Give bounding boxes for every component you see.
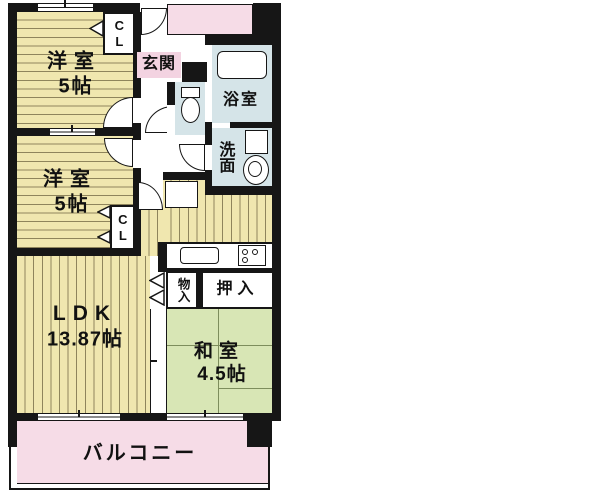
ldk-label: LDK bbox=[53, 303, 117, 325]
burner bbox=[242, 249, 248, 255]
window-tick bbox=[64, 0, 66, 7]
balcony-rail bbox=[268, 447, 270, 489]
partition-tick bbox=[150, 360, 157, 362]
wall-segment bbox=[93, 3, 140, 12]
partition-window bbox=[50, 128, 95, 136]
monoiri-label: 物入 bbox=[175, 278, 188, 303]
fridge-space bbox=[165, 181, 198, 208]
folding-door-icon bbox=[97, 205, 111, 219]
oshiire-label: 押入 bbox=[216, 282, 258, 299]
ldk-size: 13.87帖 bbox=[47, 330, 123, 351]
burner bbox=[252, 249, 258, 255]
folding-door-icon bbox=[149, 289, 165, 306]
door-gap bbox=[167, 105, 175, 133]
door-gap bbox=[133, 140, 141, 168]
washitsu-label: 和室 bbox=[194, 342, 244, 362]
wall-segment bbox=[167, 82, 175, 105]
folding-door-icon bbox=[97, 230, 111, 244]
wall-segment bbox=[230, 122, 272, 128]
wall-segment bbox=[272, 3, 281, 421]
closet-2-label: CL bbox=[116, 212, 130, 244]
window-tick bbox=[78, 410, 80, 417]
folding-door-icon bbox=[89, 20, 104, 37]
bath-label: 浴室 bbox=[223, 93, 259, 110]
window bbox=[38, 3, 93, 12]
wall-segment bbox=[205, 35, 272, 45]
hall-ldk-door-arc bbox=[138, 182, 163, 210]
storage-monoiri: 物入 bbox=[166, 271, 198, 309]
western2-label: 洋室 bbox=[43, 170, 97, 191]
balcony-rail bbox=[9, 488, 270, 490]
western1-size: 5帖 bbox=[58, 77, 93, 98]
door-gap bbox=[133, 98, 141, 123]
toilet-icon bbox=[181, 97, 200, 123]
closet-oshiire: 押入 bbox=[201, 271, 274, 309]
wall-segment bbox=[205, 186, 272, 195]
western1-label: 洋室 bbox=[47, 52, 101, 73]
folding-door-icon bbox=[149, 272, 165, 289]
closet-1-label: CL bbox=[112, 18, 126, 50]
western2-size: 5帖 bbox=[54, 195, 89, 216]
window-tick bbox=[71, 125, 73, 132]
wall-segment bbox=[163, 172, 212, 180]
wall-segment bbox=[247, 421, 272, 447]
entrance-porch bbox=[167, 4, 253, 35]
wall-segment bbox=[120, 413, 167, 421]
wall-segment bbox=[205, 122, 212, 145]
kitchen-sink-icon bbox=[180, 247, 219, 264]
genkan-label: 玄関 bbox=[142, 57, 176, 74]
window-tick bbox=[204, 410, 206, 417]
entrance-door-arc bbox=[141, 8, 167, 35]
washroom-door-arc bbox=[179, 144, 205, 171]
genkan-label-box: 玄関 bbox=[137, 52, 181, 78]
wall-segment bbox=[8, 128, 50, 136]
wall-segment bbox=[243, 413, 281, 421]
stove-icon bbox=[238, 245, 266, 266]
balcony-label: バルコニー bbox=[83, 444, 198, 465]
wall-segment bbox=[8, 3, 17, 447]
wall-segment bbox=[182, 62, 207, 82]
sink-basin bbox=[248, 161, 262, 177]
closet-2: CL bbox=[110, 205, 135, 250]
floor-plan: CL CL 物入 押入 洋室 5帖 洋室 5帖 玄関 浴室 洗面 LDK 13. bbox=[0, 0, 600, 498]
sink-icon bbox=[243, 155, 269, 185]
balcony-rail bbox=[9, 447, 11, 489]
tatami-line bbox=[218, 388, 272, 389]
washroom-label: 洗面 bbox=[216, 141, 233, 173]
wall-segment bbox=[8, 413, 38, 421]
bathtub-icon bbox=[217, 51, 267, 79]
washitsu-size: 4.5帖 bbox=[197, 365, 246, 385]
closet-1: CL bbox=[103, 12, 135, 55]
washer-icon bbox=[245, 130, 268, 154]
burner bbox=[242, 257, 248, 263]
wall-segment bbox=[95, 128, 141, 136]
